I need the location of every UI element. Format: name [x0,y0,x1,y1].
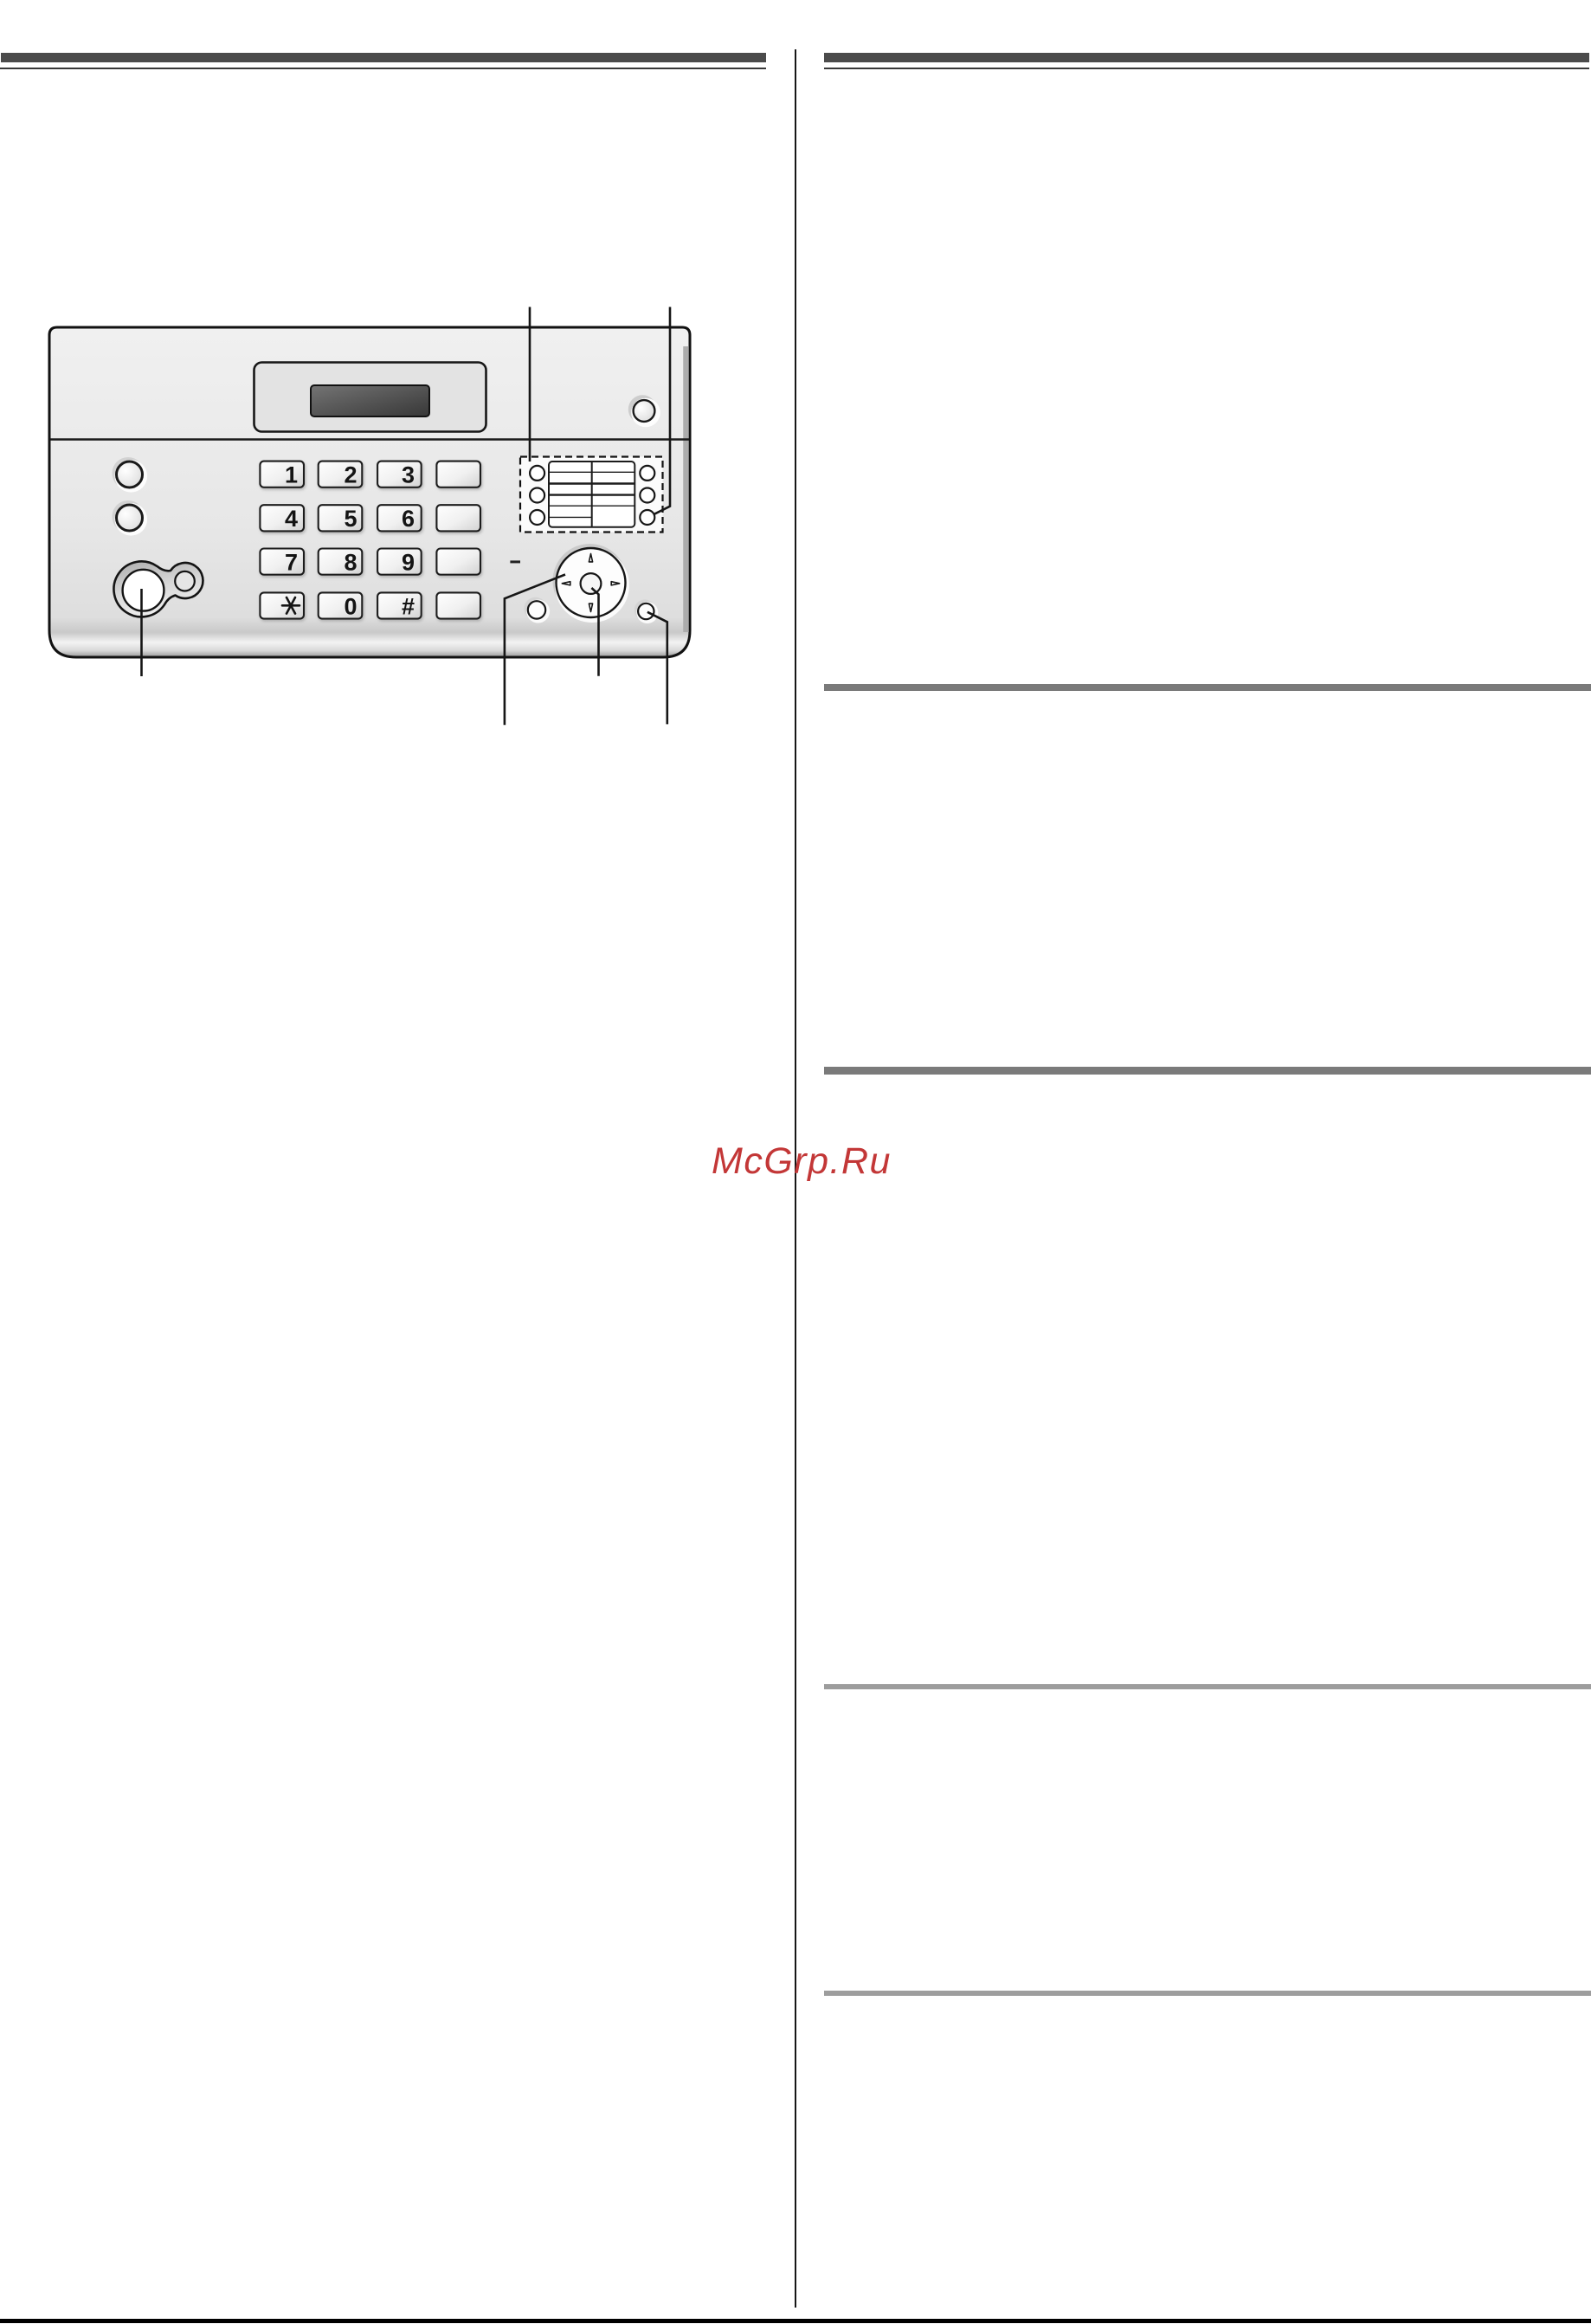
svg-text:8: 8 [344,550,357,576]
svg-text:5: 5 [344,506,357,532]
svg-text:7: 7 [285,550,298,576]
svg-text:#: # [402,593,415,619]
svg-text:3: 3 [402,462,415,488]
svg-text:4: 4 [285,506,298,532]
svg-text:6: 6 [402,506,415,532]
svg-text:2: 2 [344,462,357,488]
svg-text:0: 0 [344,593,357,619]
svg-text:9: 9 [402,550,415,576]
svg-text:1: 1 [285,462,298,488]
